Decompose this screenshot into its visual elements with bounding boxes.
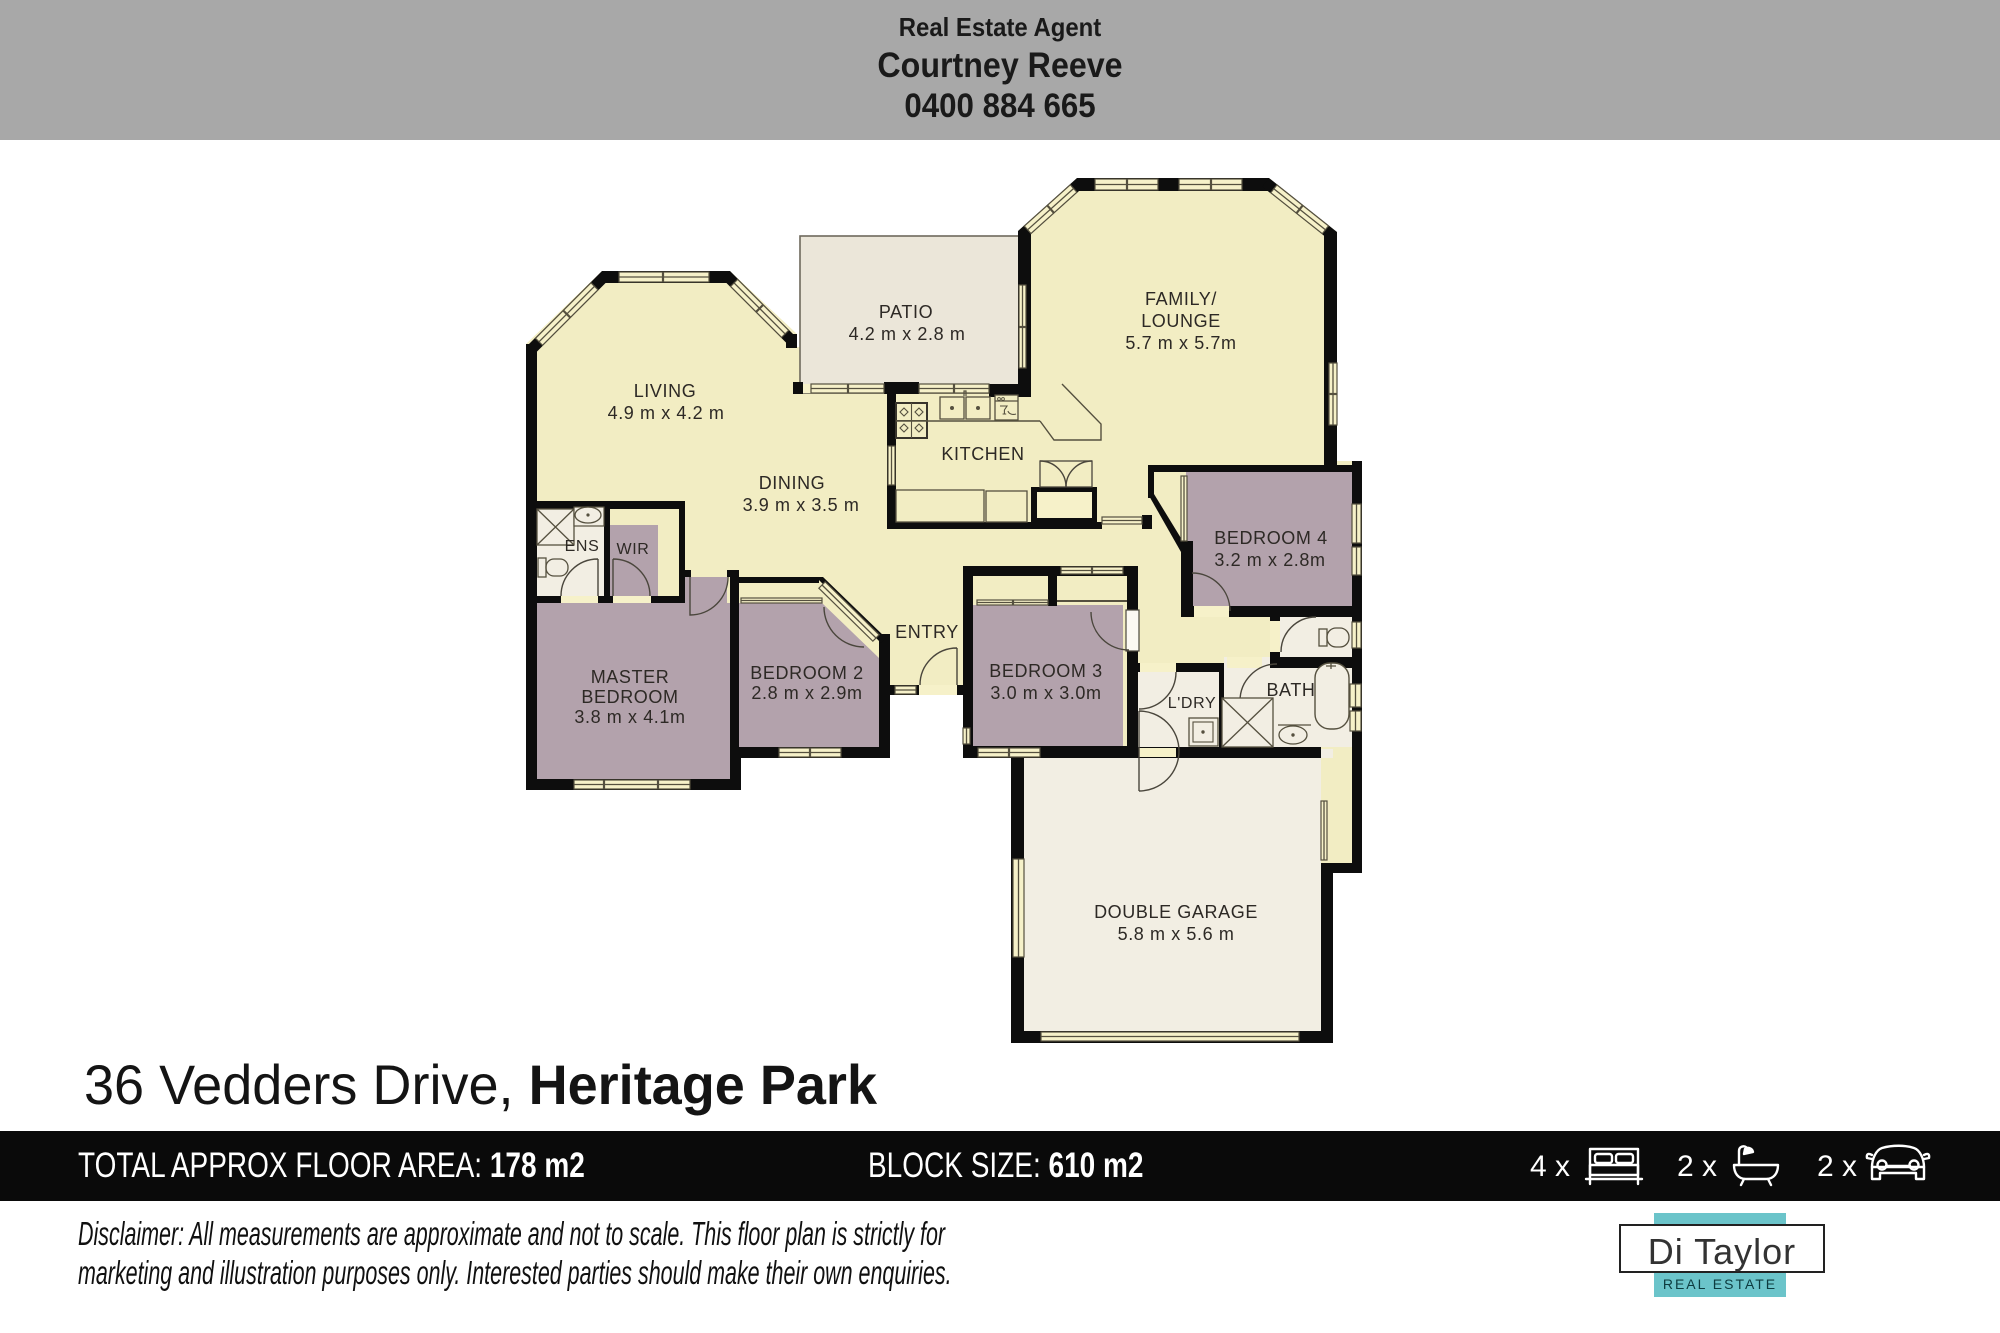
svg-text:5.8 m x 5.6 m: 5.8 m x 5.6 m [1118, 924, 1235, 944]
svg-text:BEDROOM 4: BEDROOM 4 [1214, 528, 1327, 548]
svg-text:2.8 m x 2.9m: 2.8 m x 2.9m [751, 683, 862, 703]
svg-text:2 x: 2 x [1817, 1150, 1857, 1183]
svg-text:MASTER: MASTER [591, 667, 670, 687]
svg-text:ENTRY: ENTRY [895, 622, 959, 642]
svg-text:LOUNGE: LOUNGE [1141, 311, 1221, 331]
svg-text:3.2 m x 2.8m: 3.2 m x 2.8m [1214, 550, 1325, 570]
svg-text:BEDROOM 2: BEDROOM 2 [750, 663, 863, 683]
svg-text:DOUBLE GARAGE: DOUBLE GARAGE [1094, 902, 1258, 922]
svg-text:BEDROOM: BEDROOM [581, 687, 678, 707]
svg-text:WIR: WIR [617, 541, 650, 558]
svg-text:5.7 m x 5.7m: 5.7 m x 5.7m [1125, 333, 1236, 353]
svg-text:PATIO: PATIO [879, 302, 933, 322]
svg-text:3.0 m x 3.0m: 3.0 m x 3.0m [990, 683, 1101, 703]
svg-text:BEDROOM 3: BEDROOM 3 [989, 661, 1102, 681]
svg-text:BATH: BATH [1266, 680, 1315, 700]
svg-text:4.2 m x 2.8 m: 4.2 m x 2.8 m [849, 324, 966, 344]
svg-text:L'DRY: L'DRY [1168, 695, 1216, 712]
svg-text:4.9 m x 4.2 m: 4.9 m x 4.2 m [608, 403, 725, 423]
svg-text:ENS: ENS [565, 538, 600, 555]
svg-text:LIVING: LIVING [634, 381, 697, 401]
svg-text:KITCHEN: KITCHEN [941, 444, 1024, 464]
svg-text:FAMILY/: FAMILY/ [1145, 289, 1217, 309]
svg-text:2 x: 2 x [1677, 1150, 1717, 1183]
svg-text:3.8 m x 4.1m: 3.8 m x 4.1m [574, 707, 685, 727]
svg-text:3.9 m x 3.5 m: 3.9 m x 3.5 m [743, 495, 860, 515]
svg-text:DINING: DINING [759, 473, 826, 493]
svg-text:4 x: 4 x [1530, 1150, 1570, 1183]
